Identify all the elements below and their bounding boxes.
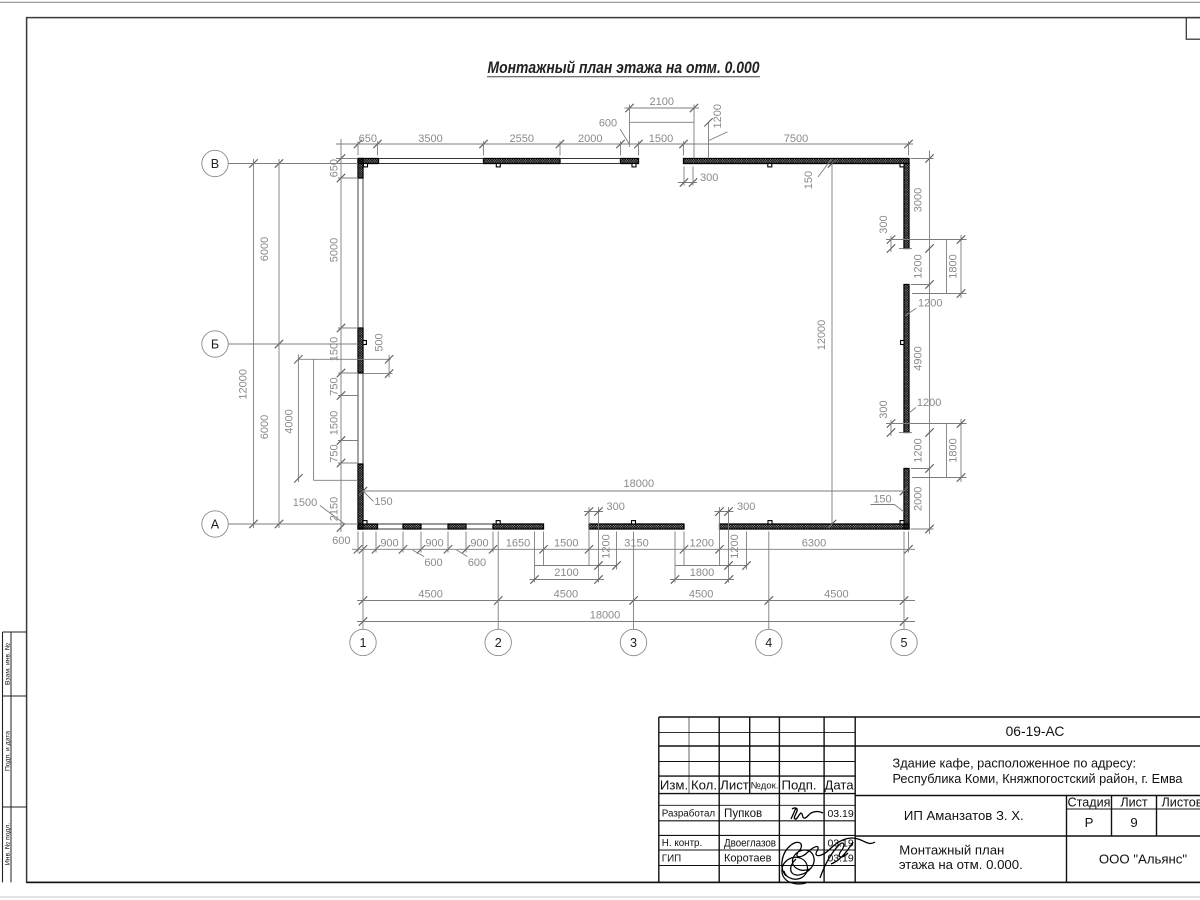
svg-text:1200: 1200 bbox=[712, 104, 724, 128]
svg-text:1200: 1200 bbox=[601, 534, 613, 558]
svg-text:1500: 1500 bbox=[554, 537, 578, 549]
svg-text:600: 600 bbox=[468, 557, 486, 569]
svg-text:900: 900 bbox=[425, 537, 443, 549]
svg-text:5: 5 bbox=[900, 636, 907, 650]
svg-text:1800: 1800 bbox=[948, 438, 960, 462]
svg-text:4900: 4900 bbox=[913, 346, 925, 370]
svg-text:300: 300 bbox=[607, 501, 625, 513]
svg-text:Разработал: Разработал bbox=[662, 809, 716, 820]
svg-text:18000: 18000 bbox=[590, 610, 621, 622]
svg-text:6000: 6000 bbox=[259, 415, 271, 439]
svg-text:4: 4 bbox=[765, 636, 772, 650]
svg-text:1200: 1200 bbox=[917, 397, 941, 409]
svg-text:этажа на отм. 0.000.: этажа на отм. 0.000. bbox=[899, 857, 1023, 872]
svg-text:2150: 2150 bbox=[329, 497, 341, 521]
svg-text:900: 900 bbox=[380, 537, 398, 549]
svg-text:ГИП: ГИП bbox=[662, 853, 681, 864]
svg-text:300: 300 bbox=[700, 172, 718, 184]
svg-text:Н. контр.: Н. контр. bbox=[662, 838, 702, 849]
svg-text:3000: 3000 bbox=[913, 188, 925, 212]
svg-text:2000: 2000 bbox=[913, 487, 925, 511]
svg-text:7500: 7500 bbox=[784, 133, 808, 145]
svg-text:300: 300 bbox=[737, 501, 755, 513]
svg-text:6300: 6300 bbox=[802, 537, 826, 549]
svg-text:Б: Б bbox=[211, 337, 219, 351]
svg-text:2000: 2000 bbox=[578, 133, 602, 145]
svg-text:4500: 4500 bbox=[554, 588, 578, 600]
svg-text:1500: 1500 bbox=[293, 497, 317, 509]
svg-text:Изм.: Изм. bbox=[660, 778, 688, 793]
svg-text:Лист: Лист bbox=[1120, 795, 1148, 809]
svg-text:4500: 4500 bbox=[689, 588, 713, 600]
svg-text:№док.: №док. bbox=[751, 781, 779, 792]
svg-text:1200: 1200 bbox=[918, 297, 942, 309]
svg-text:1200: 1200 bbox=[690, 537, 714, 549]
svg-text:3: 3 bbox=[630, 636, 637, 650]
svg-text:06-19-АС: 06-19-АС bbox=[1006, 724, 1065, 739]
svg-text:Кол.: Кол. bbox=[691, 778, 717, 793]
svg-text:Дата: Дата bbox=[824, 778, 854, 793]
svg-text:1200: 1200 bbox=[729, 534, 741, 558]
svg-text:1650: 1650 bbox=[506, 537, 530, 549]
svg-text:6000: 6000 bbox=[259, 237, 271, 261]
svg-text:1: 1 bbox=[359, 636, 366, 650]
svg-text:Республика Коми, Княжпогостски: Республика Коми, Княжпогостский район, г… bbox=[893, 771, 1184, 786]
svg-text:4000: 4000 bbox=[284, 409, 296, 433]
svg-text:ООО "Альянс": ООО "Альянс" bbox=[1099, 852, 1187, 867]
svg-text:03.19: 03.19 bbox=[827, 808, 853, 820]
svg-text:Двоеглазов: Двоеглазов bbox=[724, 838, 776, 850]
svg-text:А: А bbox=[211, 517, 220, 531]
svg-text:Монтажный план этажа на отм. 0: Монтажный план этажа на отм. 0.000 bbox=[488, 59, 760, 77]
svg-text:2100: 2100 bbox=[650, 96, 674, 108]
svg-text:Здание кафе, расположенное по: Здание кафе, расположенное по адресу: bbox=[893, 756, 1137, 771]
svg-text:3150: 3150 bbox=[624, 537, 648, 549]
svg-text:900: 900 bbox=[470, 537, 488, 549]
svg-text:650: 650 bbox=[329, 159, 341, 177]
svg-text:12000: 12000 bbox=[238, 369, 250, 400]
svg-text:Пупков: Пупков bbox=[724, 807, 762, 820]
svg-text:1200: 1200 bbox=[913, 254, 925, 278]
svg-text:Подп. и дата: Подп. и дата bbox=[5, 731, 12, 771]
svg-text:Листов: Листов bbox=[1162, 795, 1200, 809]
svg-text:1500: 1500 bbox=[329, 337, 341, 361]
svg-text:В: В bbox=[211, 157, 219, 171]
svg-text:Подп.: Подп. bbox=[781, 778, 816, 793]
svg-text:1800: 1800 bbox=[948, 254, 960, 278]
svg-text:1800: 1800 bbox=[690, 567, 714, 579]
svg-text:4500: 4500 bbox=[418, 588, 442, 600]
svg-text:12000: 12000 bbox=[816, 320, 828, 351]
svg-text:3500: 3500 bbox=[418, 133, 442, 145]
svg-text:500: 500 bbox=[373, 333, 385, 351]
svg-text:4500: 4500 bbox=[824, 588, 848, 600]
svg-text:Коротаев: Коротаев bbox=[724, 853, 772, 865]
svg-text:2100: 2100 bbox=[554, 567, 578, 579]
svg-text:600: 600 bbox=[599, 117, 617, 129]
svg-text:Инв. № подл.: Инв. № подл. bbox=[5, 823, 12, 865]
svg-text:150: 150 bbox=[873, 494, 891, 506]
svg-text:150: 150 bbox=[803, 171, 815, 189]
svg-text:600: 600 bbox=[332, 535, 350, 547]
svg-text:5000: 5000 bbox=[329, 238, 341, 262]
svg-text:1500: 1500 bbox=[329, 411, 341, 435]
svg-text:1500: 1500 bbox=[649, 133, 673, 145]
svg-text:750: 750 bbox=[329, 377, 341, 395]
svg-text:ИП Аманзатов З. Х.: ИП Аманзатов З. Х. bbox=[904, 808, 1024, 823]
svg-text:300: 300 bbox=[878, 215, 890, 233]
svg-text:Стадия: Стадия bbox=[1068, 795, 1111, 809]
svg-text:9: 9 bbox=[1130, 815, 1137, 830]
svg-text:Монтажный план: Монтажный план bbox=[899, 843, 1004, 858]
svg-text:300: 300 bbox=[878, 400, 890, 418]
svg-text:2: 2 bbox=[495, 636, 502, 650]
svg-text:600: 600 bbox=[424, 557, 442, 569]
svg-text:650: 650 bbox=[359, 133, 377, 145]
svg-text:1200: 1200 bbox=[913, 438, 925, 462]
svg-text:Р: Р bbox=[1085, 815, 1094, 830]
svg-text:750: 750 bbox=[329, 444, 341, 462]
svg-text:2550: 2550 bbox=[510, 133, 534, 145]
svg-text:18000: 18000 bbox=[624, 478, 655, 490]
svg-text:Взам. инв. №: Взам. инв. № bbox=[5, 643, 12, 685]
svg-text:150: 150 bbox=[374, 496, 392, 508]
svg-text:Лист: Лист bbox=[720, 778, 749, 793]
